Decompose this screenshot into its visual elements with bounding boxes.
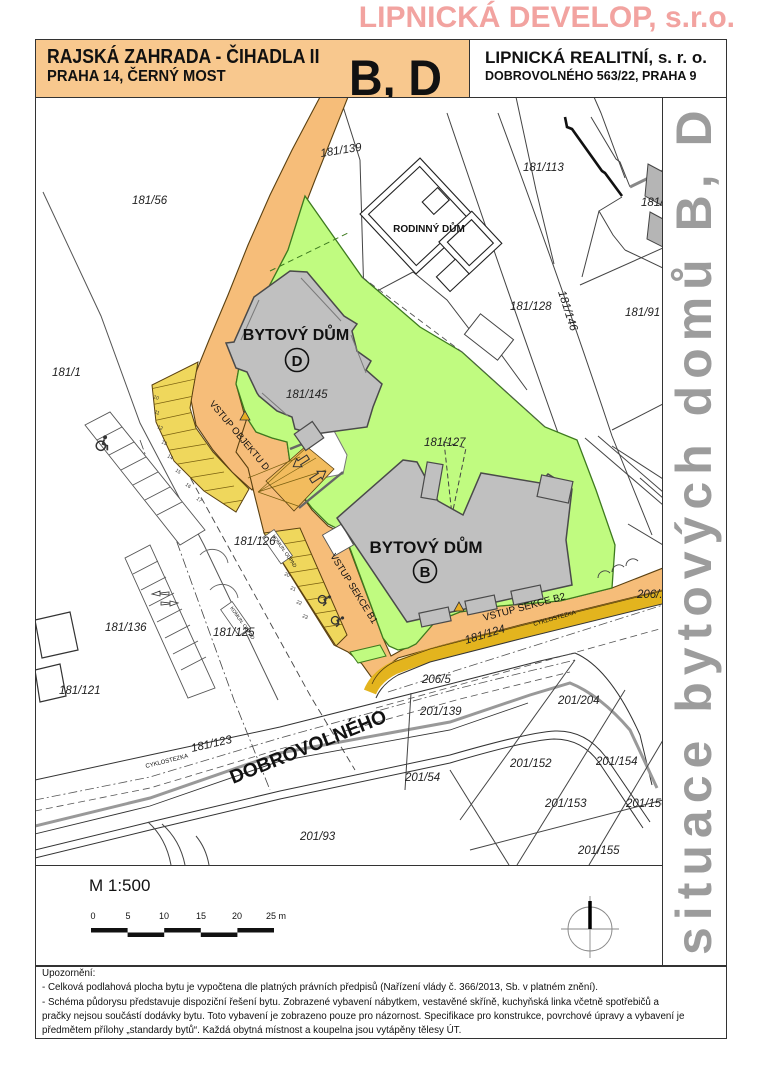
svg-text:BYTOVÝ DŮM: BYTOVÝ DŮM <box>243 324 349 344</box>
svg-text:201/139: 201/139 <box>419 706 462 718</box>
svg-text:B: B <box>420 564 431 581</box>
svg-text:181/121: 181/121 <box>59 685 101 697</box>
svg-text:181/136: 181/136 <box>105 622 147 634</box>
svg-text:5: 5 <box>125 911 130 921</box>
svg-text:201/156: 201/156 <box>625 798 668 810</box>
svg-text:15: 15 <box>196 911 206 921</box>
svg-text:RODINNÝ DŮM: RODINNÝ DŮM <box>393 221 465 235</box>
svg-text:201/153: 201/153 <box>544 798 587 810</box>
svg-text:25 m: 25 m <box>266 911 286 921</box>
svg-text:201/152: 201/152 <box>509 758 552 770</box>
svg-text:201/154: 201/154 <box>595 756 638 768</box>
svg-text:181/113: 181/113 <box>523 162 564 174</box>
svg-text:201/54: 201/54 <box>404 772 440 784</box>
svg-text:20: 20 <box>232 911 242 921</box>
svg-text:BYTOVÝ DŮM: BYTOVÝ DŮM <box>369 537 482 557</box>
svg-text:201/155: 201/155 <box>577 845 620 857</box>
svg-text:D: D <box>292 353 303 370</box>
svg-text:181/91: 181/91 <box>625 307 660 319</box>
svg-text:181/127: 181/127 <box>424 437 466 449</box>
svg-text:10: 10 <box>159 911 169 921</box>
svg-text:206/5: 206/5 <box>421 674 451 686</box>
svg-text:situace bytových domů B, D: situace bytových domů B, D <box>666 103 722 955</box>
svg-text:201/204: 201/204 <box>557 695 600 707</box>
svg-text:M 1:500: M 1:500 <box>89 876 150 895</box>
svg-text:0: 0 <box>90 911 95 921</box>
svg-text:201/93: 201/93 <box>299 831 336 843</box>
svg-text:206/...: 206/... <box>636 589 669 601</box>
svg-text:181/1: 181/1 <box>52 367 81 379</box>
svg-text:181/126: 181/126 <box>234 536 276 548</box>
svg-text:181/128: 181/128 <box>510 301 552 313</box>
svg-text:181/56: 181/56 <box>132 195 168 207</box>
svg-text:181/145: 181/145 <box>286 389 328 401</box>
